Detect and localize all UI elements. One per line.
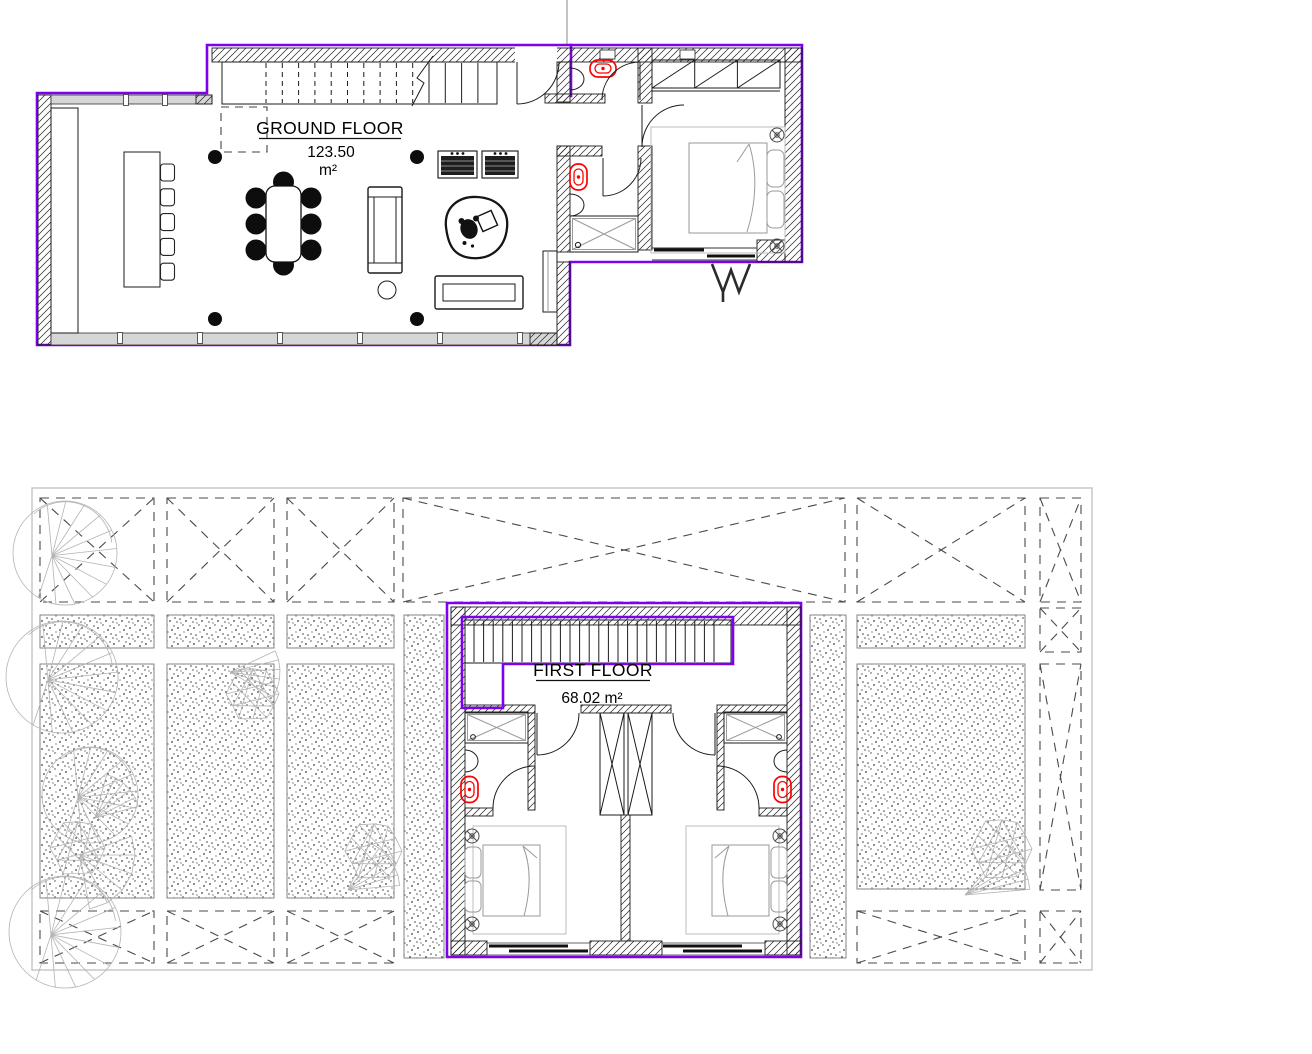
ff-bedroom-left [465,713,590,955]
first-floor-title-block: FIRST FLOOR 68.02 m² [533,660,653,707]
paving-cell [287,911,394,963]
paving-cell [40,911,154,963]
appliance-unit [438,151,477,178]
dining-chair [301,214,322,235]
sofa-vertical [368,187,402,273]
paving-cell [1040,911,1081,963]
tree-symbol [13,501,117,605]
armchair-rug [446,197,507,258]
structural-columns [208,150,424,326]
dining-table [266,186,301,262]
bar-stool [161,214,175,231]
bar-stool [161,189,175,206]
paving-cell [1040,608,1081,652]
planting-bed [167,615,274,648]
planting-bed [404,615,444,958]
toilet-symbol [570,164,587,190]
bed-symbol [686,826,787,934]
first-floor-area: 68.02 m² [561,690,622,707]
kitchen-island [124,152,160,287]
bar-stool [161,263,175,280]
dining-chair [301,240,322,261]
paving-cell [403,498,845,602]
sofa-horizontal [435,276,523,309]
bed-symbol [651,127,785,253]
ff-bedroom-right [662,713,787,955]
column-symbol [410,150,424,164]
bar-stool [161,238,175,255]
paving-cell [167,911,274,963]
exterior-marker [712,264,750,302]
sink-symbol [774,750,787,772]
ground-floor-area: 123.50 [307,144,355,161]
paving-cell [167,498,274,602]
ground-floor-title: GROUND FLOOR [256,118,404,138]
paving-cell [857,498,1025,602]
paving-cell [1040,664,1081,890]
wardrobe [652,60,780,91]
gf-bathroom-ensuite [570,158,641,252]
bedroom-window [652,248,757,260]
door-arc [603,158,641,196]
dining-chair [246,188,267,209]
wall-light-symbol [770,128,784,142]
bar-stools [161,164,175,280]
sink-symbol [465,750,478,772]
ground-floor-area-unit: m² [319,162,337,179]
planting-bed [810,615,846,958]
paving-cell [857,911,1025,963]
door-arc [537,713,579,755]
shower [465,712,528,743]
bedroom-window [662,943,765,955]
shower [570,216,638,252]
dining-chair [301,188,322,209]
dining-table-set [246,172,322,276]
ground-floor-outline [37,45,802,345]
window-band-bottom [51,333,557,345]
wall-light-symbol [773,829,787,843]
ground-floor-title-block: GROUND FLOOR 123.50 m² [256,118,404,179]
bed-symbol [465,826,566,934]
paving-cell [287,498,394,602]
floor-plan-canvas: GROUND FLOOR 123.50 m² [0,0,1312,1054]
site-plan [6,488,1092,988]
door-arc [673,713,715,755]
planting-bed [857,664,1025,889]
living-room [368,151,557,312]
shower [724,712,787,743]
window-band-top [51,95,212,104]
bar-stool [161,164,175,181]
kitchen-counter [51,108,78,333]
column-symbol [208,150,222,164]
ottoman [476,210,497,231]
planting-bed [287,615,394,648]
wall-light-symbol [465,917,479,931]
ff-bathroom-left [461,712,535,808]
first-floor-plan: FIRST FLOOR 68.02 m² [447,603,801,957]
dining-chair [246,240,267,261]
ground-floor-plan: GROUND FLOOR 123.50 m² [37,0,802,345]
door-arc [602,62,640,100]
wall-light-symbol [465,829,479,843]
wall-light-symbol [773,917,787,931]
sink-symbol [570,194,584,216]
ff-bathroom-right [717,712,791,808]
dining-chair [246,214,267,235]
planting-bed [857,615,1025,648]
floor-plan-document: GROUND FLOOR 123.50 m² [0,0,1312,1054]
column-symbol [410,312,424,326]
first-floor-title: FIRST FLOOR [533,660,653,680]
ff-wardrobe [600,713,652,815]
gf-bedroom [642,60,785,260]
paving-cell [1040,498,1081,602]
bedroom-window [487,943,590,955]
tv-cabinet [543,251,557,312]
side-table [378,281,396,299]
appliance-unit [482,151,518,178]
door-arc [642,105,684,147]
kitchen [51,108,175,333]
column-symbol [208,312,222,326]
